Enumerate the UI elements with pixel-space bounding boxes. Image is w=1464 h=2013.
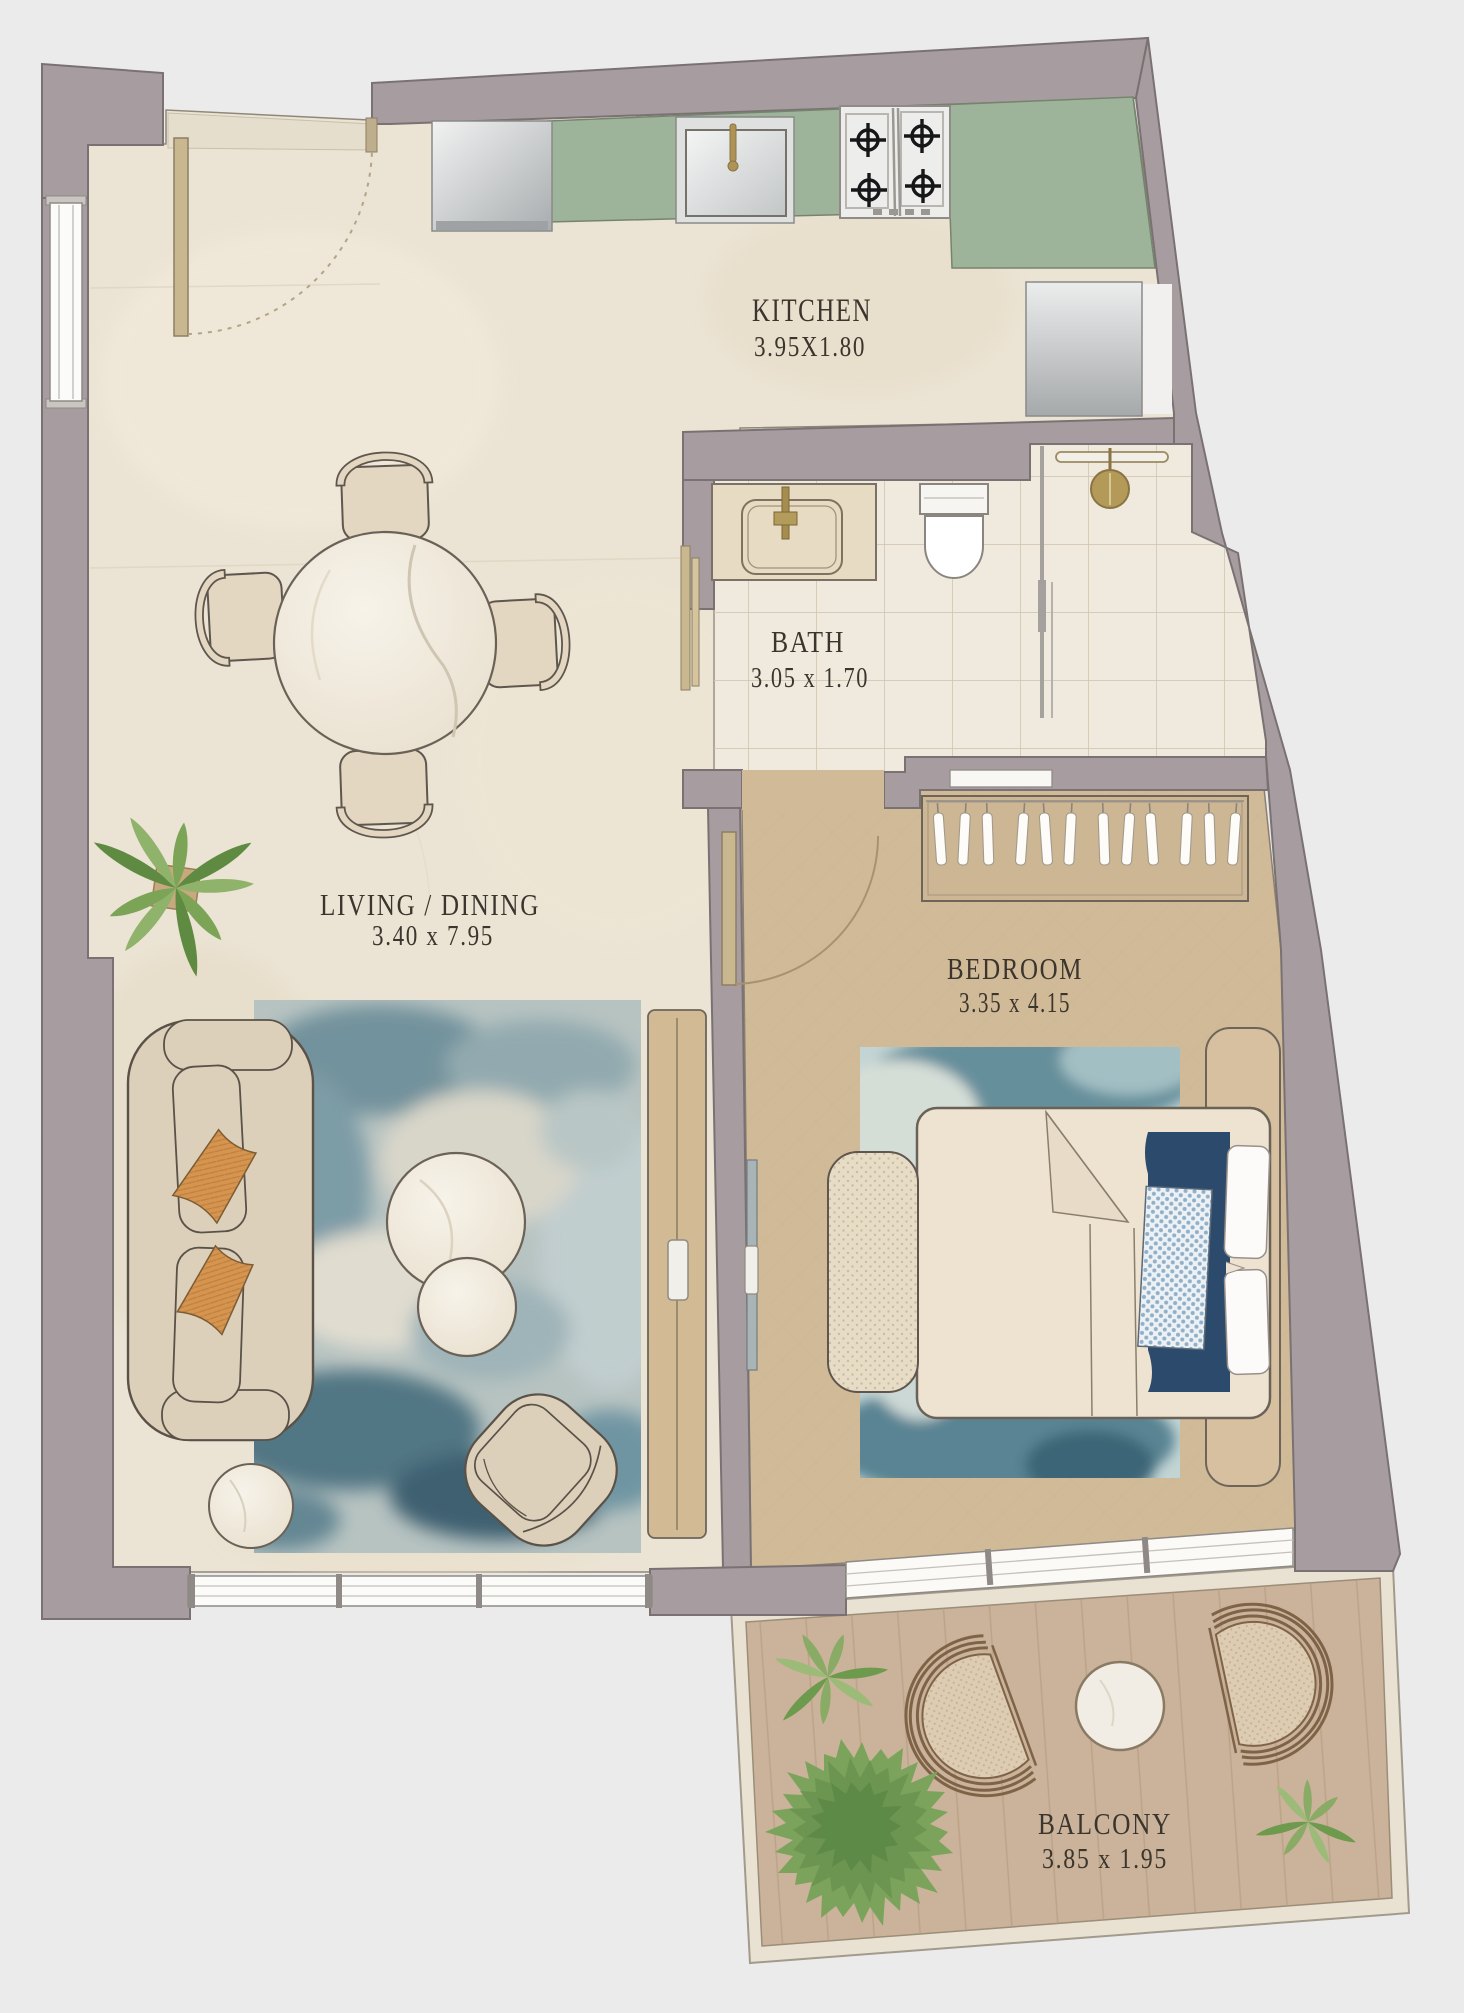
- svg-text:3.35 x 4.15: 3.35 x 4.15: [959, 988, 1071, 1019]
- svg-text:LIVING / DINING: LIVING / DINING: [320, 887, 540, 922]
- svg-text:3.40 x 7.95: 3.40 x 7.95: [372, 921, 494, 952]
- svg-text:3.85 x 1.95: 3.85 x 1.95: [1042, 1844, 1168, 1875]
- svg-text:KITCHEN: KITCHEN: [752, 293, 872, 329]
- svg-text:BEDROOM: BEDROOM: [947, 951, 1083, 986]
- svg-text:BALCONY: BALCONY: [1038, 1806, 1172, 1841]
- svg-text:3.05 x 1.70: 3.05 x 1.70: [751, 663, 869, 694]
- svg-text:BATH: BATH: [771, 624, 845, 659]
- svg-text:3.95X1.80: 3.95X1.80: [754, 331, 866, 363]
